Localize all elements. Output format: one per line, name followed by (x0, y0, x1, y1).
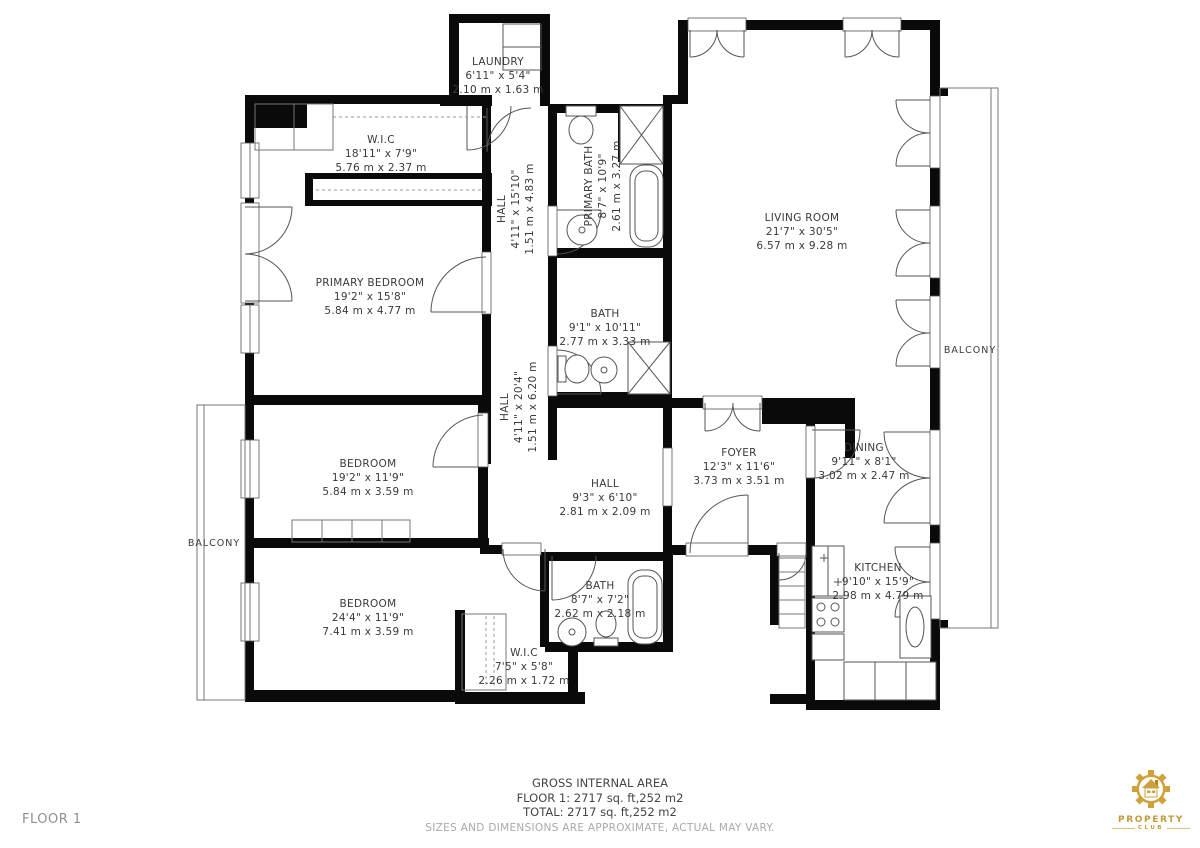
room-label-foyer: FOYER 12'3" x 11'6" 3.73 m x 3.51 m (693, 446, 784, 488)
room-name: BATH (559, 307, 650, 321)
room-label-wic-bottom: W.I.C 7'5" x 5'8" 2.26 m x 1.72 m (478, 646, 569, 688)
room-dims-metric: 2.98 m x 4.79 m (832, 589, 923, 603)
room-dims-metric: 1.51 m x 6.20 m (526, 361, 540, 452)
room-dims-metric: 5.76 m x 2.37 m (335, 161, 426, 175)
room-dims-imperial: 6'11" x 5'4" (452, 69, 543, 83)
room-label-primary-bath: PRIMARY BATH 8'7" x 10'9" 2.61 m x 3.27 … (582, 140, 624, 231)
room-dims-metric: 6.57 m x 9.28 m (756, 239, 847, 253)
room-dims-imperial: 8'7" x 7'2" (554, 593, 645, 607)
room-dims-imperial: 12'3" x 11'6" (693, 460, 784, 474)
room-dims-imperial: 9'10" x 15'9" (832, 575, 923, 589)
summary-disclaimer: SIZES AND DIMENSIONS ARE APPROXIMATE, AC… (0, 821, 1200, 836)
room-name: BATH (554, 579, 645, 593)
room-dims-metric: 1.51 m x 4.83 m (523, 163, 537, 254)
room-dims-imperial: 9'3" x 6'10" (559, 491, 650, 505)
room-label-dining: DINING 9'11" x 8'1" 3.02 m x 2.47 m (818, 441, 909, 483)
room-name: W.I.C (478, 646, 569, 660)
summary-title: GROSS INTERNAL AREA (0, 776, 1200, 791)
room-name: BALCONY (188, 537, 240, 551)
room-dims-imperial: 4'11" x 15'10" (509, 163, 523, 254)
room-label-balcony-right: BALCONY (944, 344, 996, 358)
room-label-primary-bedroom: PRIMARY BEDROOM 19'2" x 15'8" 5.84 m x 4… (316, 276, 425, 318)
room-name: PRIMARY BATH (582, 140, 596, 231)
room-dims-imperial: 18'11" x 7'9" (335, 147, 426, 161)
room-dims-metric: 5.84 m x 3.59 m (322, 485, 413, 499)
room-name: BEDROOM (322, 597, 413, 611)
room-name: KITCHEN (832, 561, 923, 575)
room-dims-metric: 3.73 m x 3.51 m (693, 474, 784, 488)
room-dims-metric: 7.41 m x 3.59 m (322, 625, 413, 639)
room-dims-imperial: 21'7" x 30'5" (756, 225, 847, 239)
room-name: DINING (818, 441, 909, 455)
gear-house-icon (1129, 770, 1173, 810)
room-name: BEDROOM (322, 457, 413, 471)
room-label-laundry: LAUNDRY 6'11" x 5'4" 2.10 m x 1.63 m (452, 55, 543, 97)
room-label-living-room: LIVING ROOM 21'7" x 30'5" 6.57 m x 9.28 … (756, 211, 847, 253)
logo-name-text: PROPERTY (1112, 815, 1190, 825)
room-dims-imperial: 4'11" x 20'4" (512, 361, 526, 452)
logo-sub-text: CLUB (1112, 825, 1190, 831)
room-label-balcony-left: BALCONY (188, 537, 240, 551)
room-dims-imperial: 7'5" x 5'8" (478, 660, 569, 674)
area-summary: GROSS INTERNAL AREA FLOOR 1: 2717 sq. ft… (0, 776, 1200, 835)
room-name: PRIMARY BEDROOM (316, 276, 425, 290)
room-name: BALCONY (944, 344, 996, 358)
summary-total-line: TOTAL: 2717 sq. ft,252 m2 (0, 805, 1200, 820)
summary-floor-line: FLOOR 1: 2717 sq. ft,252 m2 (0, 791, 1200, 806)
room-dims-metric: 3.02 m x 2.47 m (818, 469, 909, 483)
room-name: HALL (498, 361, 512, 452)
room-dims-metric: 5.84 m x 4.77 m (316, 304, 425, 318)
room-dims-imperial: 19'2" x 15'8" (316, 290, 425, 304)
floorplan-drawing (0, 0, 1200, 848)
room-dims-imperial: 19'2" x 11'9" (322, 471, 413, 485)
room-dims-metric: 2.77 m x 3.33 m (559, 335, 650, 349)
floorplan-page: LAUNDRY 6'11" x 5'4" 2.10 m x 1.63 m W.I… (0, 0, 1200, 848)
room-dims-metric: 2.81 m x 2.09 m (559, 505, 650, 519)
room-label-hall-upper: HALL 4'11" x 15'10" 1.51 m x 4.83 m (495, 163, 537, 254)
room-name: HALL (559, 477, 650, 491)
room-label-wic-primary: W.I.C 18'11" x 7'9" 5.76 m x 2.37 m (335, 133, 426, 175)
room-label-bedroom-middle: BEDROOM 19'2" x 11'9" 5.84 m x 3.59 m (322, 457, 413, 499)
room-label-bedroom-bottom: BEDROOM 24'4" x 11'9" 7.41 m x 3.59 m (322, 597, 413, 639)
room-label-kitchen: KITCHEN 9'10" x 15'9" 2.98 m x 4.79 m (832, 561, 923, 603)
room-dims-metric: 2.62 m x 2.18 m (554, 607, 645, 621)
room-label-bath-bottom: BATH 8'7" x 7'2" 2.62 m x 2.18 m (554, 579, 645, 621)
room-label-hall-lower: HALL 4'11" x 20'4" 1.51 m x 6.20 m (498, 361, 540, 452)
room-dims-imperial: 9'11" x 8'1" (818, 455, 909, 469)
room-name: LIVING ROOM (756, 211, 847, 225)
room-dims-imperial: 24'4" x 11'9" (322, 611, 413, 625)
room-label-bath-center: BATH 9'1" x 10'11" 2.77 m x 3.33 m (559, 307, 650, 349)
room-label-hall-center: HALL 9'3" x 6'10" 2.81 m x 2.09 m (559, 477, 650, 519)
room-dims-imperial: 8'7" x 10'9" (596, 140, 610, 231)
floor-number-label: FLOOR 1 (22, 812, 82, 827)
room-dims-metric: 2.26 m x 1.72 m (478, 674, 569, 688)
room-dims-metric: 2.10 m x 1.63 m (452, 83, 543, 97)
room-dims-metric: 2.61 m x 3.27 m (610, 140, 624, 231)
room-name: LAUNDRY (452, 55, 543, 69)
room-name: HALL (495, 163, 509, 254)
room-name: W.I.C (335, 133, 426, 147)
room-name: FOYER (693, 446, 784, 460)
room-dims-imperial: 9'1" x 10'11" (559, 321, 650, 335)
property-club-logo: PROPERTY CLUB (1112, 770, 1190, 831)
